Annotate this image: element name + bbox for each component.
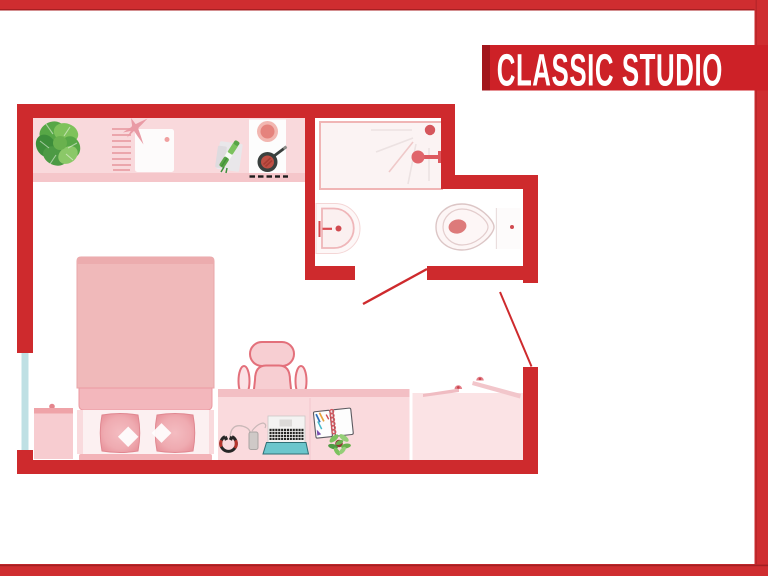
svg-text:CLASSIC STUDIO: CLASSIC STUDIO [497,45,723,95]
